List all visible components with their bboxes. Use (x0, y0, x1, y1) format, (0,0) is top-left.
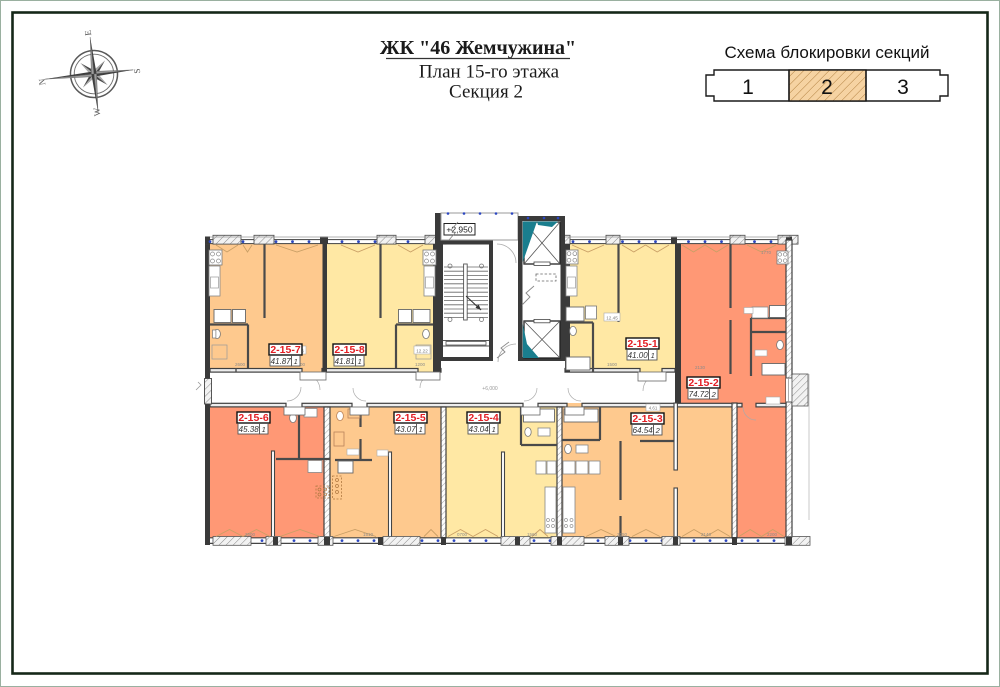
svg-text:2-15-3: 2-15-3 (632, 413, 663, 425)
svg-text:64.54: 64.54 (633, 426, 654, 435)
svg-text:12.22: 12.22 (416, 348, 428, 353)
svg-text:4.61: 4.61 (649, 406, 658, 411)
svg-text:2-15-6: 2-15-6 (238, 412, 269, 424)
svg-text:План 15-го этажа: План 15-го этажа (419, 62, 560, 83)
svg-text:2-15-5: 2-15-5 (395, 412, 426, 424)
svg-text:2600: 2600 (235, 362, 246, 367)
svg-text:2-15-8: 2-15-8 (334, 344, 365, 356)
svg-text:2130: 2130 (695, 365, 706, 370)
svg-text:2600: 2600 (245, 532, 256, 537)
svg-text:Секция 2: Секция 2 (449, 82, 523, 103)
svg-text:1: 1 (262, 425, 266, 434)
svg-text:12.45: 12.45 (606, 315, 618, 320)
svg-text:2: 2 (655, 426, 661, 435)
svg-text:Схема блокировки секций: Схема блокировки секций (724, 43, 929, 62)
svg-text:41.81: 41.81 (335, 357, 355, 366)
svg-text:2200: 2200 (767, 532, 778, 537)
svg-text:S: S (132, 68, 142, 74)
svg-text:1500: 1500 (607, 362, 618, 367)
svg-text:45.38: 45.38 (239, 425, 260, 434)
svg-text:43.07: 43.07 (396, 425, 417, 434)
svg-text:3: 3 (897, 76, 909, 99)
svg-text:2140: 2140 (701, 532, 712, 537)
svg-text:74.72: 74.72 (689, 390, 710, 399)
svg-text:1: 1 (492, 425, 496, 434)
svg-text:ЖК "46 Жемчужина": ЖК "46 Жемчужина" (380, 37, 576, 59)
svg-text:1200: 1200 (415, 362, 426, 367)
svg-text:41.00: 41.00 (628, 351, 649, 360)
svg-text:+2,950: +2,950 (446, 225, 473, 235)
svg-text:1770: 1770 (761, 250, 772, 255)
svg-text:2-15-4: 2-15-4 (468, 412, 499, 424)
svg-text:2-15-1: 2-15-1 (627, 338, 658, 350)
svg-text:1: 1 (651, 351, 655, 360)
svg-text:2150: 2150 (617, 532, 628, 537)
svg-text:41.87: 41.87 (271, 357, 292, 366)
svg-text:1: 1 (294, 357, 298, 366)
svg-text:2: 2 (711, 390, 717, 399)
svg-text:2-15-7: 2-15-7 (270, 344, 301, 356)
svg-text:1560: 1560 (527, 532, 538, 537)
svg-text:+6,000: +6,000 (482, 386, 498, 392)
svg-text:2: 2 (821, 76, 833, 99)
svg-text:1: 1 (419, 425, 423, 434)
svg-text:2-15-2: 2-15-2 (688, 377, 719, 389)
svg-text:W: W (92, 107, 103, 117)
svg-text:1: 1 (742, 76, 754, 99)
svg-text:0700: 0700 (457, 532, 468, 537)
svg-text:43.04: 43.04 (469, 425, 490, 434)
svg-text:1: 1 (358, 357, 362, 366)
svg-text:1510: 1510 (363, 532, 374, 537)
